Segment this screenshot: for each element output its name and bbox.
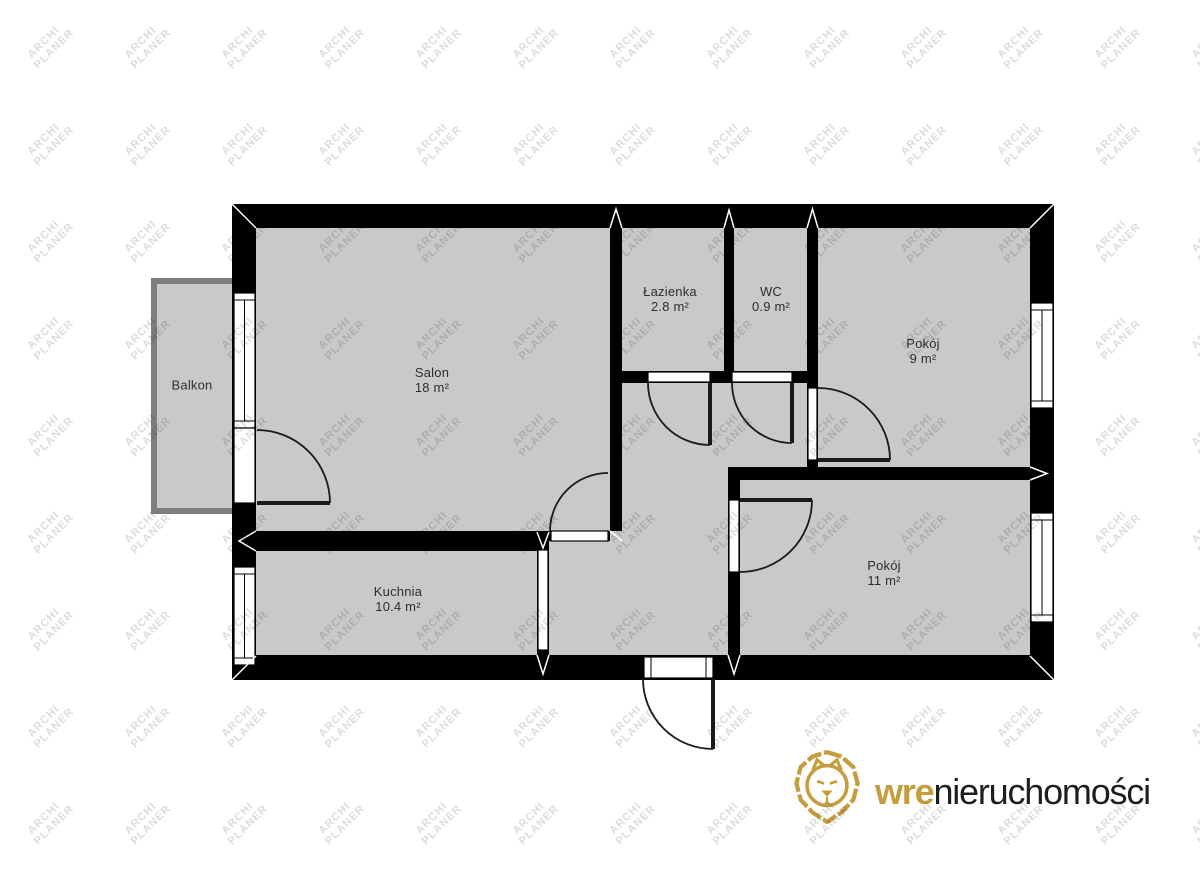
wall-room11-left xyxy=(728,467,740,680)
room9-window xyxy=(1031,303,1053,408)
room-area: 2.8 m² xyxy=(643,299,697,314)
label-pokoj-9: Pokój 9 m² xyxy=(906,336,940,366)
lion-icon xyxy=(791,750,863,824)
wall-bottom xyxy=(232,655,1054,680)
salon-window xyxy=(234,293,255,428)
kitchen-window xyxy=(234,567,255,665)
room-name: Salon xyxy=(415,365,449,380)
room-area: 0.9 m² xyxy=(752,299,790,314)
room-area: 10.4 m² xyxy=(374,599,422,614)
floorplan-page: Balkon Salon 18 m² Kuchnia 10.4 m² Łazie… xyxy=(0,0,1200,879)
room-name: Kuchnia xyxy=(374,584,422,599)
brand-name-bold: wre xyxy=(875,771,933,812)
room9-door-frame xyxy=(808,388,817,460)
room-area: 11 m² xyxy=(867,573,901,588)
wall-top xyxy=(232,204,1054,228)
entry-door-swing xyxy=(643,679,713,749)
label-lazienka: Łazienka 2.8 m² xyxy=(643,284,697,314)
brand-name: wrenieruchomości xyxy=(875,761,1150,813)
balcony-door-frame xyxy=(234,428,255,503)
room-name: Łazienka xyxy=(643,284,697,299)
room11-window xyxy=(1031,513,1053,622)
label-wc: WC 0.9 m² xyxy=(752,284,790,314)
room11-door-frame xyxy=(729,500,739,572)
entry-door-frame xyxy=(644,657,713,678)
apartment-floor xyxy=(232,204,1054,680)
room-name: Balkon xyxy=(172,378,213,393)
balcony-outline xyxy=(154,281,235,511)
wall-kitchen-top xyxy=(232,531,549,551)
room-name: WC xyxy=(752,284,790,299)
brand-logo: wrenieruchomości xyxy=(791,750,1150,824)
wall-rooms-divider xyxy=(728,467,1030,480)
salon-door-frame xyxy=(551,531,608,541)
label-salon: Salon 18 m² xyxy=(415,365,449,395)
brand-name-rest: nieruchomości xyxy=(933,771,1150,812)
label-balkon: Balkon xyxy=(172,378,213,393)
room-name: Pokój xyxy=(867,558,901,573)
label-pokoj-11: Pokój 11 m² xyxy=(867,558,901,588)
wall-bath-wc-divider xyxy=(724,228,734,371)
floor-plan-drawing xyxy=(0,0,1200,879)
bath-door-frame xyxy=(648,372,710,382)
kitchen-passage xyxy=(538,550,548,650)
room-name: Pokój xyxy=(906,336,940,351)
wc-door-frame xyxy=(732,372,792,382)
room-area: 9 m² xyxy=(906,351,940,366)
label-kuchnia: Kuchnia 10.4 m² xyxy=(374,584,422,614)
room-area: 18 m² xyxy=(415,380,449,395)
